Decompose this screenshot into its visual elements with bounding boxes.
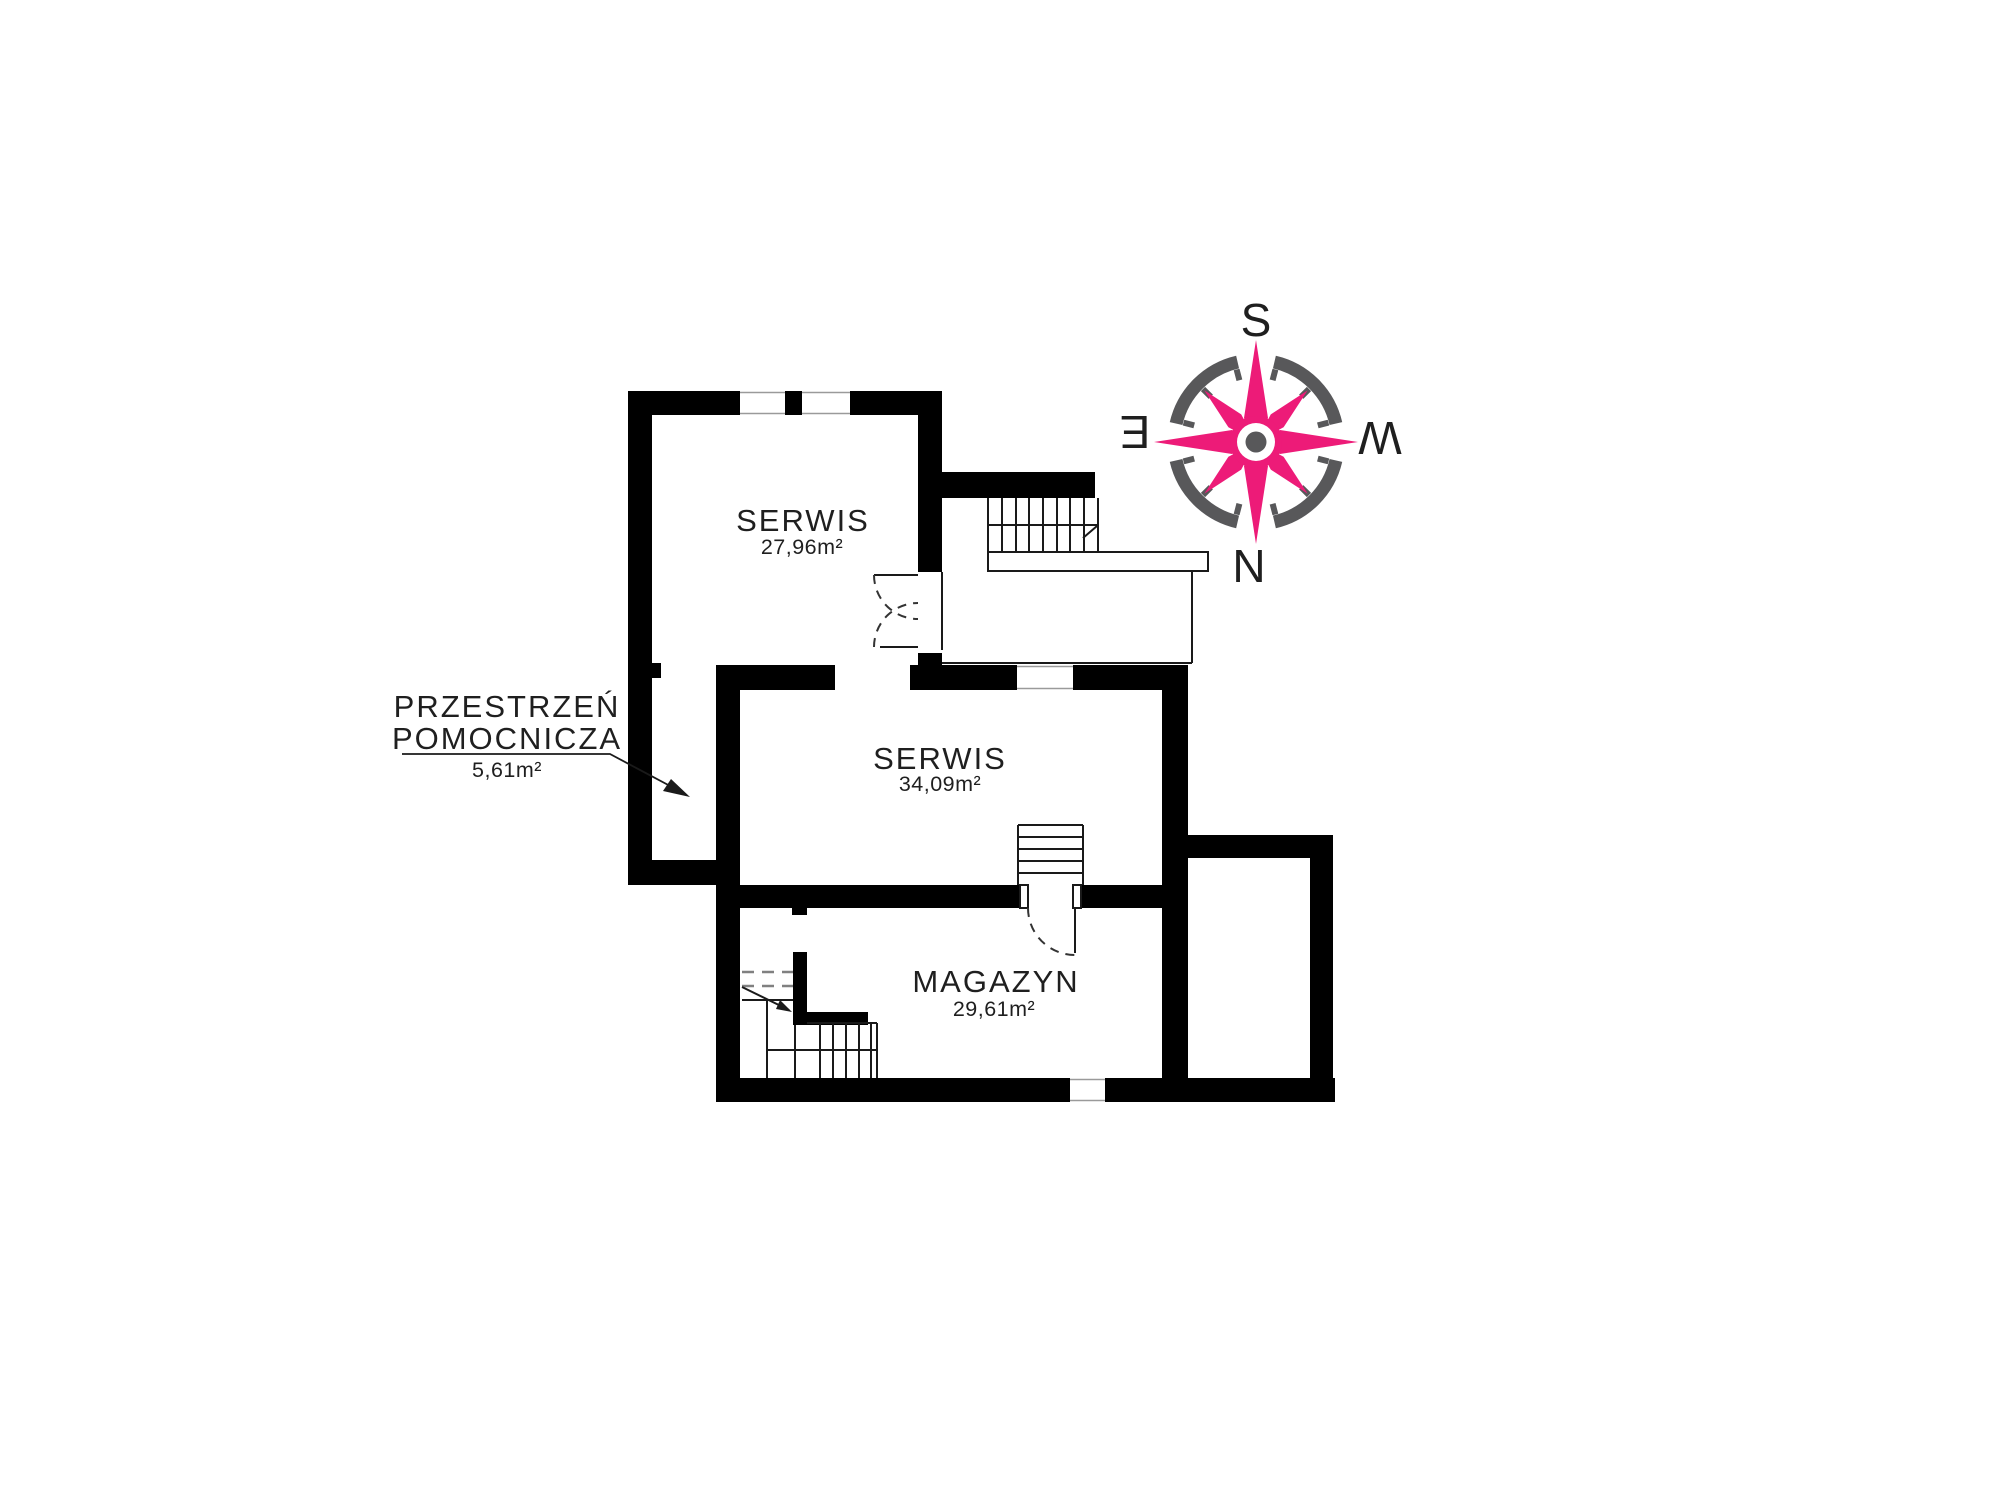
stairs-platform [988,552,1208,571]
aux-space-area: 5,61m² [472,758,542,782]
floor-plan-canvas: SERWIS 27,96m² SERWIS 34,09m² MAGAZYN 29… [0,0,2000,1500]
compass-rose: S N E W [1120,294,1402,592]
compass-letter-south: S [1241,294,1272,346]
window-magazyn [1070,1080,1105,1101]
compass-hub-dot [1246,432,1267,453]
wall-aux-bottom [628,860,716,885]
wall-nub-below [792,908,807,915]
window-top-1 [740,393,785,414]
wall-stairwell-top [942,472,1095,498]
wall-serwis1-right [918,415,942,572]
room-magazyn-name: MAGAZYN [912,964,1079,999]
aux-leader-arrow-icon [663,779,690,797]
stairs-top-edges [988,498,1098,552]
window-serwis2 [1017,667,1073,689]
room-magazyn-area: 29,61m² [953,997,1035,1021]
stairs-magazyn-dashed [742,972,793,986]
magazyn-door-jamb-left [1020,885,1028,908]
room-magazyn: MAGAZYN 29,61m² [912,964,1079,1021]
wall-serwis2-top-b [910,665,1017,690]
compass-letter-east: E [1120,406,1151,458]
stairs-middle-edges [1018,825,1083,885]
window-top-2 [802,393,850,414]
stairs-magazyn-lines [742,987,877,1078]
aux-space-label: PRZESTRZEŃ POMOCNICZA 5,61m² [392,689,622,782]
wall-narrowroom-right [1310,835,1333,1102]
wall-left [628,391,652,885]
stairs-top [942,498,1208,663]
aux-space-name-line1: PRZESTRZEŃ [394,689,621,724]
room-serwis-1: SERWIS 27,96m² [736,503,870,559]
double-door [874,575,918,647]
wall-serwis2-bottom-b [1081,885,1162,908]
stairs-magazyn-arrowhead [776,1000,792,1012]
room-serwis-2-name: SERWIS [873,741,1007,776]
room-serwis-2: SERWIS 34,09m² [873,741,1007,796]
double-door-swing-arcs [874,575,918,647]
wall-bottom-b [1105,1078,1335,1102]
floor-plan-page: SERWIS 27,96m² SERWIS 34,09m² MAGAZYN 29… [0,0,2000,1500]
wall-top-c [850,391,942,415]
room-serwis-2-area: 34,09m² [899,772,981,796]
room-serwis-1-area: 27,96m² [761,535,843,559]
wall-nub-aux [652,663,661,678]
wall-narrowroom-top [1162,835,1333,858]
wall-bottom-a [716,1078,1070,1102]
wall-main-right [1162,665,1188,1102]
landing-outline [942,571,1192,663]
wall-center-vertical [716,665,740,1102]
stairs-middle [1018,825,1083,885]
wall-top-b [785,391,802,415]
room-serwis-1-name: SERWIS [736,503,870,538]
aux-space-name-line2: POMOCNICZA [392,721,622,756]
double-door-leaves [874,575,918,647]
magazyn-door-jamb-right [1073,885,1081,908]
compass-letter-north: N [1232,540,1265,592]
wall-serwis2-bottom-a [740,885,1020,908]
magazyn-door-swing-arc [1028,908,1075,955]
wall-serwis2-top-c [1073,665,1162,690]
magazyn-door [1020,885,1081,955]
compass-letter-west: W [1358,412,1402,464]
